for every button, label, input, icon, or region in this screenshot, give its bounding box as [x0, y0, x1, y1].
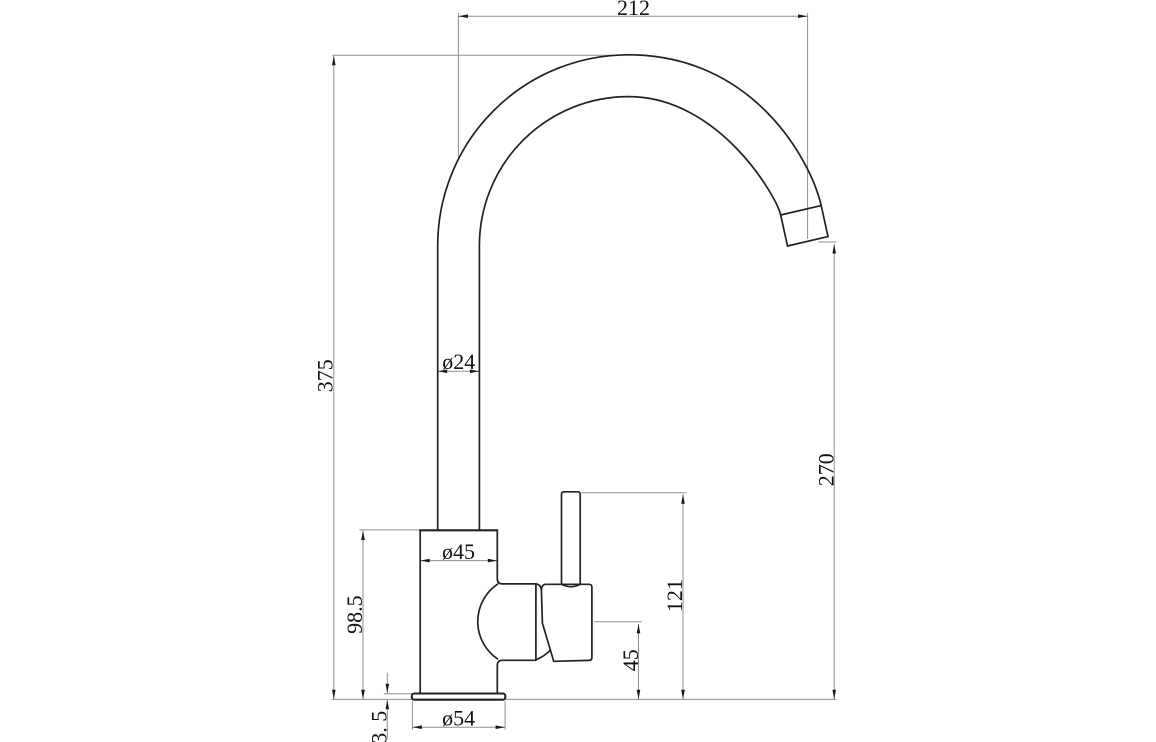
svg-text:121: 121 [662, 579, 687, 612]
svg-text:270: 270 [813, 453, 838, 486]
svg-text:ø54: ø54 [442, 706, 475, 731]
svg-text:ø45: ø45 [442, 539, 475, 564]
svg-text:212: 212 [617, 0, 650, 20]
svg-text:98.5: 98.5 [342, 595, 367, 634]
svg-text:3. 5: 3. 5 [366, 711, 391, 742]
svg-text:375: 375 [313, 359, 338, 392]
svg-text:ø24: ø24 [442, 349, 475, 374]
svg-text:45: 45 [618, 649, 643, 671]
